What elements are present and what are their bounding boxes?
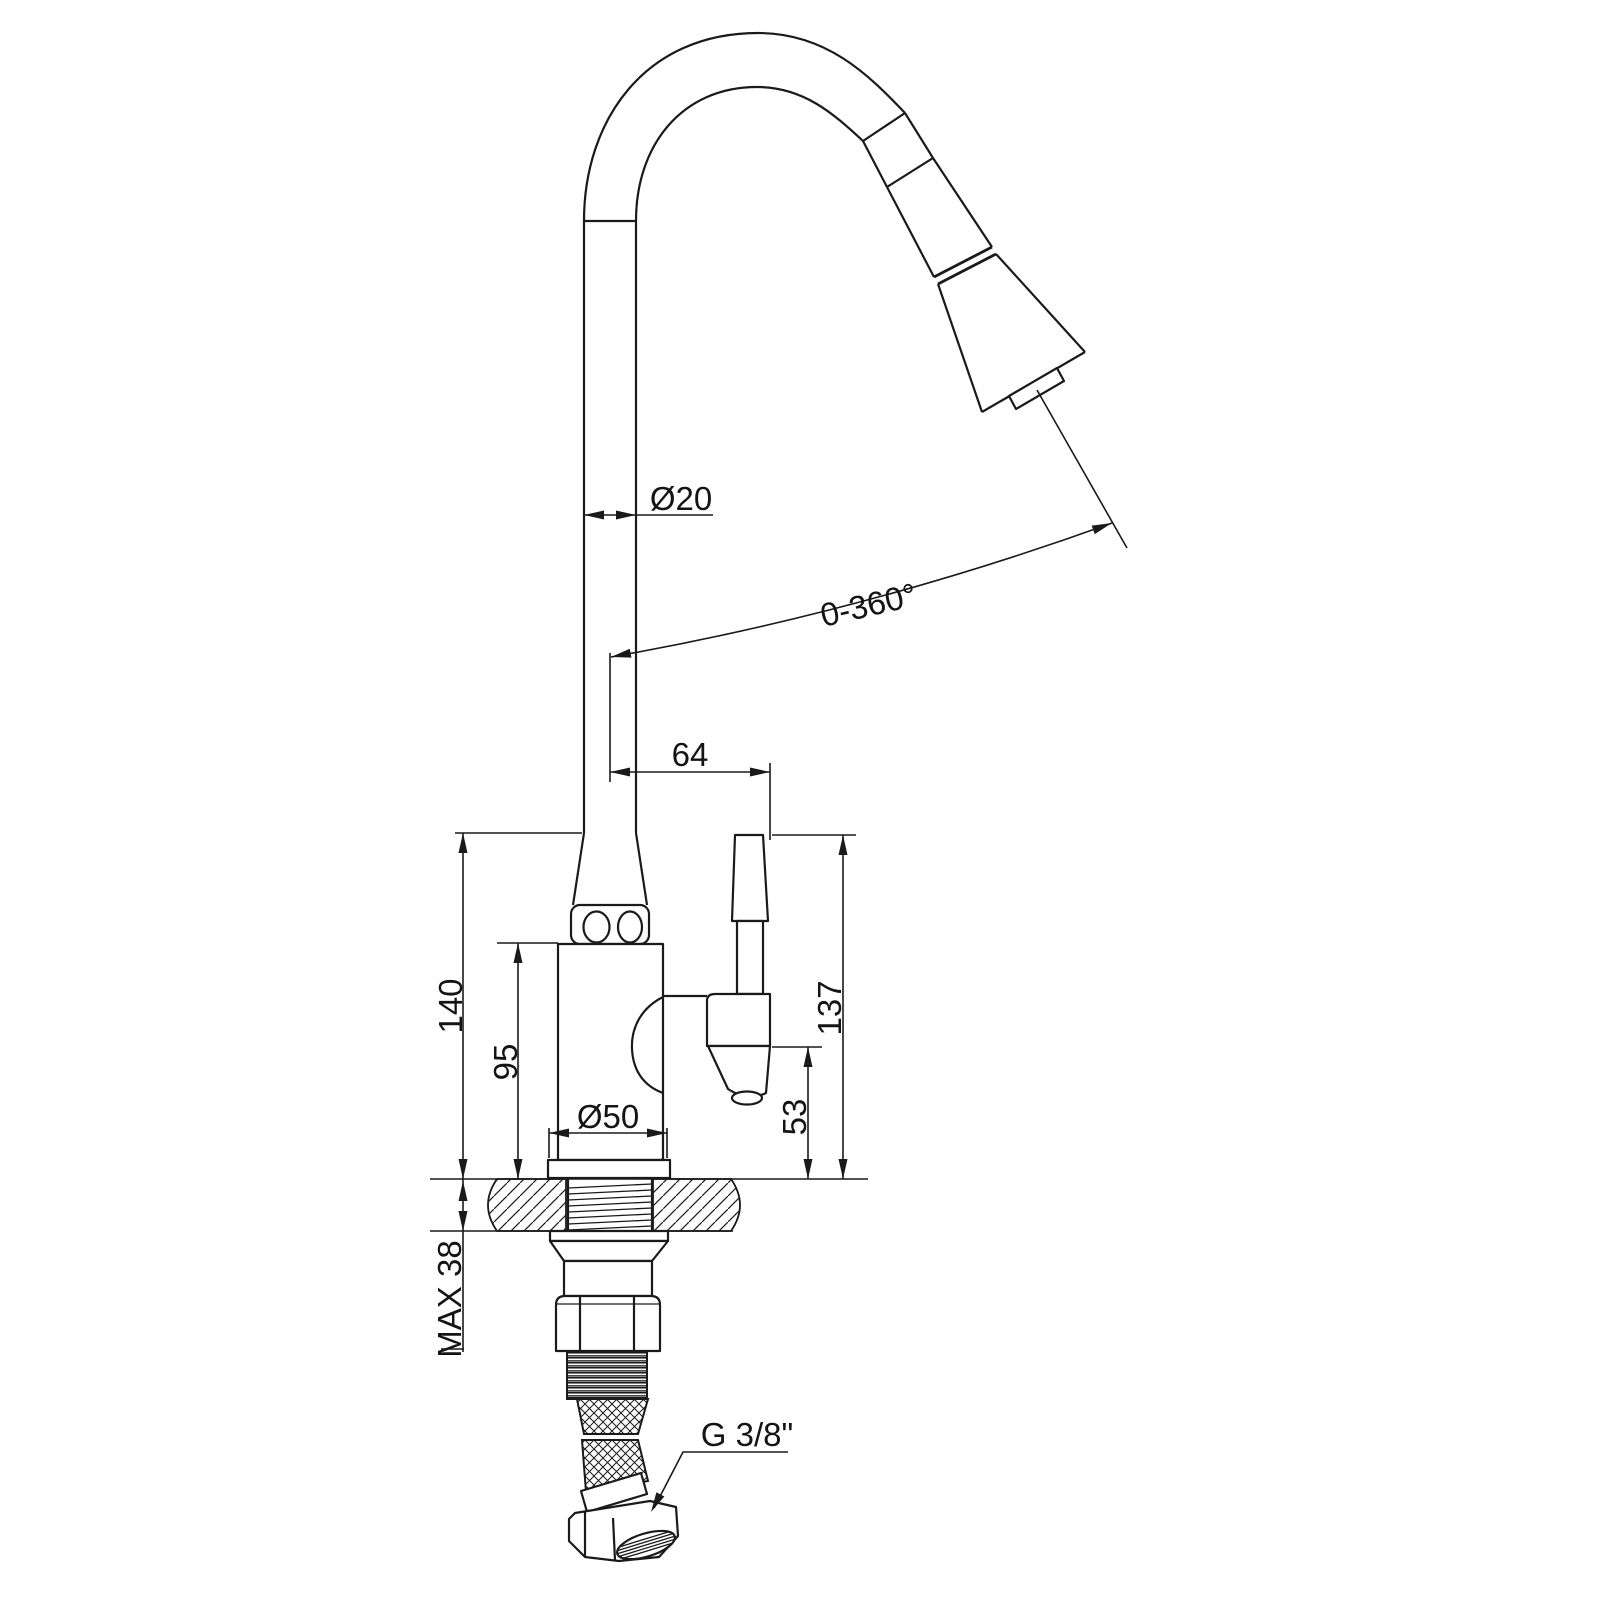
dimension-annotations: Ø20 0-360° 64 140 xyxy=(431,390,1127,1514)
dim-max-thickness: MAX 38 xyxy=(431,1179,468,1358)
dim-swivel-range: 0-360° xyxy=(610,390,1127,782)
handle-lever xyxy=(707,835,770,1105)
threaded-tail xyxy=(567,1351,647,1399)
dim-spout-diameter: Ø20 xyxy=(584,480,713,520)
faucet-technical-drawing: Ø20 0-360° 64 140 xyxy=(0,0,1600,1600)
dim-max-thickness-label: MAX 38 xyxy=(431,1240,468,1357)
drawing-canvas: Ø20 0-360° 64 140 xyxy=(0,0,1600,1600)
lock-washer xyxy=(550,1231,668,1241)
gooseneck-spout xyxy=(584,33,933,833)
dim-height-95: 95 xyxy=(487,943,558,1179)
hose-connector-nut xyxy=(569,1501,678,1565)
mounting-hardware xyxy=(550,1231,668,1399)
dim-swivel-range-label: 0-360° xyxy=(817,576,920,634)
threaded-shank xyxy=(568,1179,652,1231)
dim-height-53-label: 53 xyxy=(776,1099,813,1136)
mounting-nut xyxy=(556,1296,660,1351)
faucet-body xyxy=(548,944,707,1178)
dim-height-137-label: 137 xyxy=(811,980,848,1035)
base-flange xyxy=(548,1160,670,1178)
dim-height-140-label: 140 xyxy=(432,978,469,1033)
dim-offset-64: 64 xyxy=(610,736,770,840)
spray-head xyxy=(887,158,1085,412)
dim-height-95-label: 95 xyxy=(487,1044,524,1081)
spray-nozzle xyxy=(1009,368,1064,409)
dim-spout-diameter-label: Ø20 xyxy=(650,480,712,517)
countertop-section xyxy=(430,1179,868,1231)
dim-thread-callout-label: G 3/8" xyxy=(701,1416,793,1453)
dim-height-53: 53 xyxy=(772,1047,822,1179)
dim-thread-callout: G 3/8" xyxy=(647,1416,793,1514)
supply-hose xyxy=(569,1399,678,1565)
mounting-collar xyxy=(571,833,649,944)
dim-offset-64-label: 64 xyxy=(672,736,709,773)
dim-base-diameter-label: Ø50 xyxy=(577,1098,639,1135)
